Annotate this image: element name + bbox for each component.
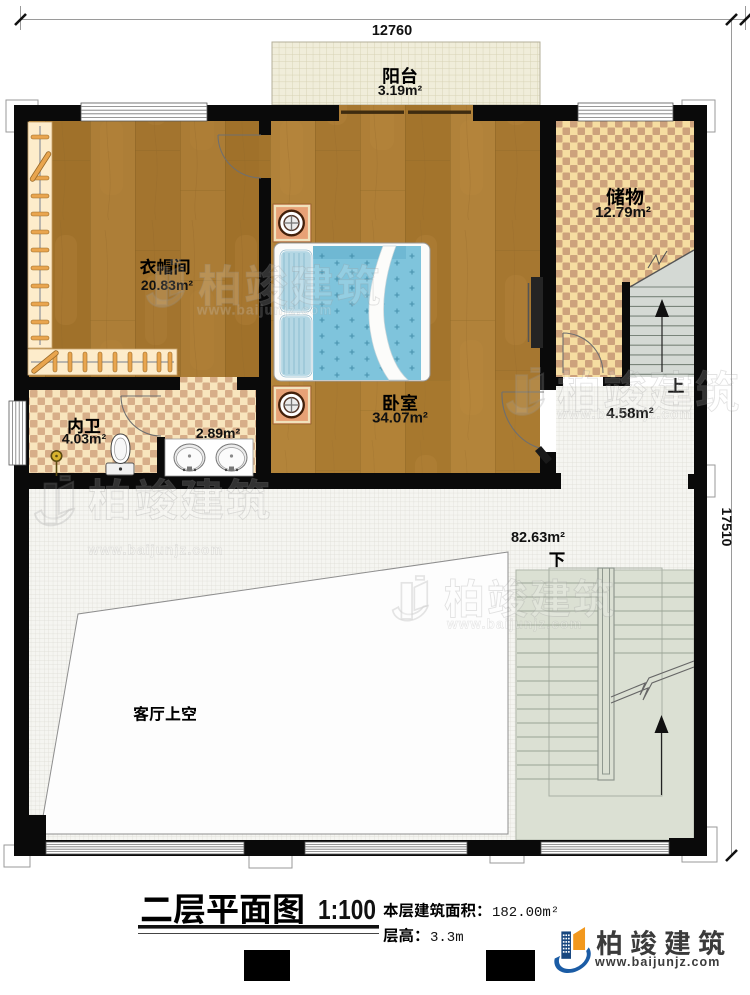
- svg-text:www.baijunjz.com: www.baijunjz.com: [446, 617, 583, 632]
- svg-text:www.baijunjz.com: www.baijunjz.com: [556, 407, 693, 422]
- svg-text:www.baijunjz.com: www.baijunjz.com: [87, 543, 224, 558]
- svg-text:www.baijunjz.com: www.baijunjz.com: [594, 955, 720, 969]
- svg-text:12760: 12760: [372, 23, 412, 39]
- svg-text:17510: 17510: [719, 508, 735, 547]
- svg-text:2.89m²: 2.89m²: [196, 425, 241, 441]
- svg-text:182.00m²: 182.00m²: [492, 905, 559, 921]
- svg-text:1:100: 1:100: [318, 894, 376, 925]
- svg-text:82.63m²: 82.63m²: [511, 530, 565, 546]
- svg-text:12.79m²: 12.79m²: [595, 204, 651, 221]
- svg-text:www.baijunjz.com: www.baijunjz.com: [196, 303, 333, 318]
- svg-text:4.03m²: 4.03m²: [62, 431, 107, 447]
- svg-text:3.19m²: 3.19m²: [378, 82, 423, 98]
- svg-text:3.3m: 3.3m: [430, 930, 464, 946]
- svg-text:34.07m²: 34.07m²: [372, 410, 428, 427]
